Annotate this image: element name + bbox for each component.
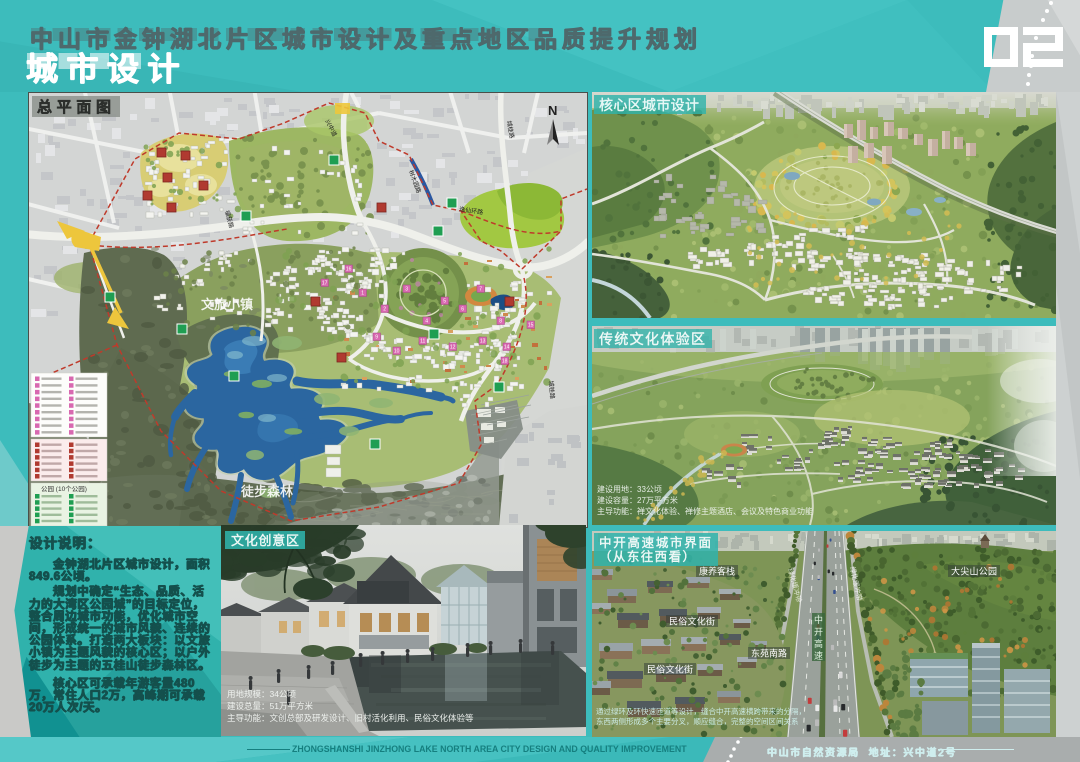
svg-text:18: 18 — [502, 359, 508, 365]
svg-text:通过绿环及环快速匝道等设计，缝合中开高速横跨带来的分隔，: 通过绿环及环快速匝道等设计，缝合中开高速横跨带来的分隔， — [596, 706, 806, 716]
svg-text:5: 5 — [443, 299, 446, 305]
svg-text:主导功能：禅文化体验、禅修主题酒店、会议及特色商业功能: 主导功能：禅文化体验、禅修主题酒店、会议及特色商业功能 — [597, 506, 813, 516]
svg-text:8: 8 — [499, 319, 502, 325]
svg-text:建设用地：33公顷: 建设用地：33公顷 — [597, 484, 662, 494]
svg-text:中: 中 — [814, 614, 823, 625]
svg-text:东苑南路: 东苑南路 — [751, 648, 787, 659]
svg-text:14: 14 — [504, 345, 510, 351]
svg-text:开: 开 — [814, 627, 823, 637]
svg-text:核心区城市设计: 核心区城市设计 — [599, 97, 699, 113]
svg-text:17: 17 — [322, 281, 328, 287]
svg-text:7: 7 — [479, 287, 482, 293]
svg-text:民俗文化街: 民俗文化街 — [647, 664, 693, 675]
svg-text:1: 1 — [361, 291, 364, 297]
svg-text:速: 速 — [814, 651, 823, 661]
svg-text:用地规模：34公顷: 用地规模：34公顷 — [227, 689, 296, 699]
svg-text:10: 10 — [394, 349, 400, 355]
svg-text:文旅小镇: 文旅小镇 — [201, 297, 253, 312]
svg-text:建设容量：27万平方米: 建设容量：27万平方米 — [597, 495, 678, 505]
svg-text:建设总量：51万平方米: 建设总量：51万平方米 — [227, 701, 313, 711]
svg-text:主导功能：文创总部及研发设计、旧村活化利用、民俗文化体验等: 主导功能：文创总部及研发设计、旧村活化利用、民俗文化体验等 — [227, 713, 474, 723]
svg-text:11: 11 — [420, 339, 425, 345]
svg-text:（从东往西看）: （从东往西看） — [599, 549, 695, 564]
svg-text:6: 6 — [461, 307, 464, 313]
svg-text:12: 12 — [450, 345, 456, 351]
svg-text:文化创意区: 文化创意区 — [231, 533, 299, 548]
svg-text:13: 13 — [480, 339, 486, 345]
svg-text:徒步森林: 徒步森林 — [241, 484, 293, 499]
svg-text:9: 9 — [375, 335, 378, 341]
svg-text:东西两侧形成多个主要分叉，顺应缝合，完整的空间区间关系: 东西两侧形成多个主要分叉，顺应缝合，完整的空间区间关系 — [596, 716, 799, 726]
svg-text:康养客栈: 康养客栈 — [699, 566, 735, 577]
svg-text:大尖山公园: 大尖山公园 — [951, 566, 997, 577]
svg-text:2: 2 — [383, 307, 386, 313]
svg-text:15: 15 — [528, 323, 534, 329]
svg-text:16: 16 — [346, 267, 352, 273]
svg-text:传统文化体验区: 传统文化体验区 — [599, 331, 705, 347]
svg-text:4: 4 — [425, 319, 428, 325]
svg-text:高: 高 — [814, 638, 823, 649]
svg-text:民俗文化街: 民俗文化街 — [669, 616, 715, 627]
svg-text:N: N — [548, 103, 557, 118]
svg-text:公园 (10个公园): 公园 (10个公园) — [41, 485, 87, 493]
svg-text:3: 3 — [405, 287, 408, 293]
svg-text:中开高速城市界面: 中开高速城市界面 — [599, 535, 711, 550]
